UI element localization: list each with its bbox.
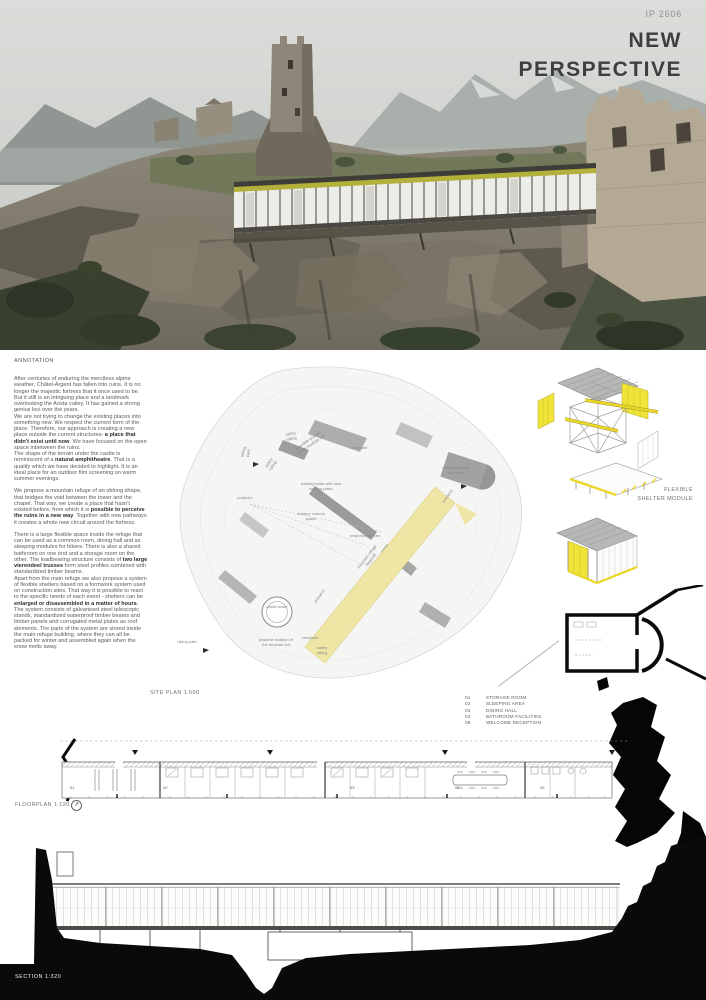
- siteplan-label: castle tower: [264, 605, 290, 610]
- siteplan-label: existing walls with new seating place: [299, 482, 343, 491]
- floorplan-room-number: 02: [163, 785, 167, 790]
- title-line-1: NEW: [518, 26, 682, 55]
- annotation-paragraph: Apart from the main refuge we also propo…: [14, 576, 149, 651]
- siteplan-label: mountain refuge (legend): [356, 544, 382, 573]
- annotation-paragraph: The shape of the terrain under the castl…: [14, 451, 149, 482]
- floorplan-scale-label: FLOORPLAN 1:120: [15, 802, 70, 808]
- siteplan-label: hiking path: [177, 640, 197, 645]
- floorplan-room-number: 01: [70, 785, 74, 790]
- siteplan-label: outdoor cinema space: [295, 512, 327, 521]
- room-legend: 01 STORAGE ROOM 02 SLEEPING AREA 03 DINI…: [465, 695, 542, 726]
- siteplan-label: safety railing: [263, 455, 280, 473]
- siteplan-label: entrance: [312, 586, 328, 607]
- floorplan-body: [62, 762, 612, 799]
- floorplan-room-number: 03: [350, 785, 354, 790]
- shelter-label-line-1: FLEXIBLE: [637, 486, 693, 495]
- page-title: NEW PERSPECTIVE: [518, 26, 682, 84]
- shelter-exploded-axo: [538, 368, 662, 499]
- legend-number: 05: [465, 720, 486, 726]
- competition-board: IP 2606 NEW PERSPECTIVE ANNOTATION After…: [0, 0, 706, 1000]
- siteplan-label: safety railing: [311, 646, 333, 655]
- legend-item: 05 WELCOME RECEPTION: [465, 720, 542, 726]
- siteplan-label: projection screen: [349, 534, 381, 539]
- annotation-heading: ANNOTATION: [14, 358, 149, 364]
- shelter-label-line-2: SHELTER MODULE: [637, 495, 693, 504]
- shelter-module-diagram: [530, 355, 706, 610]
- siteplan-label: entrance: [440, 486, 456, 507]
- siteplan-label: projector: [235, 496, 255, 501]
- annotation-paragraph: We propose a mountain refuge of an oblon…: [14, 488, 149, 526]
- legend-label: WELCOME RECEPTION: [486, 720, 541, 726]
- section-scale-label: SECTION 1:320: [15, 974, 61, 980]
- section-building: [48, 852, 620, 960]
- siteplan-label: viewpoint: [349, 446, 369, 451]
- project-id: IP 2606: [646, 9, 682, 19]
- annotation-paragraph: There is a large flexible space inside t…: [14, 532, 149, 576]
- siteplan-label: chapel welcome reception: [441, 466, 471, 475]
- siteplan-label: hiking path: [240, 445, 252, 461]
- siteplan-label: possible location of the modular hut: [257, 638, 295, 647]
- annotation-column: ANNOTATION After centuries of enduring t…: [14, 358, 149, 651]
- detail-plan-walls: [567, 585, 706, 679]
- section-markers: [132, 750, 615, 755]
- shelter-assembled-axo: [557, 518, 637, 583]
- siteplan-label: viewpoint: [299, 636, 321, 641]
- floorplan-room-number: 05: [540, 785, 544, 790]
- site-plan-labels: hiking path safety railing possible loca…: [165, 362, 545, 692]
- section-drawing: [0, 818, 706, 1000]
- shelter-module-label: FLEXIBLE SHELTER MODULE: [637, 486, 693, 504]
- detail-plan-drawing: [545, 585, 706, 850]
- floorplan-drawing: [55, 733, 706, 805]
- annotation-paragraph: We are not trying to change the existing…: [14, 414, 149, 452]
- floorplan-room-number: 04: [455, 785, 459, 790]
- site-plan-scale-label: SITE PLAN 1:500: [150, 690, 199, 696]
- siteplan-label: safety railing: [282, 431, 299, 443]
- title-line-2: PERSPECTIVE: [518, 55, 682, 84]
- north-arrow-icon: ↗: [71, 800, 82, 811]
- annotation-paragraph: After centuries of enduring the merciles…: [14, 376, 149, 414]
